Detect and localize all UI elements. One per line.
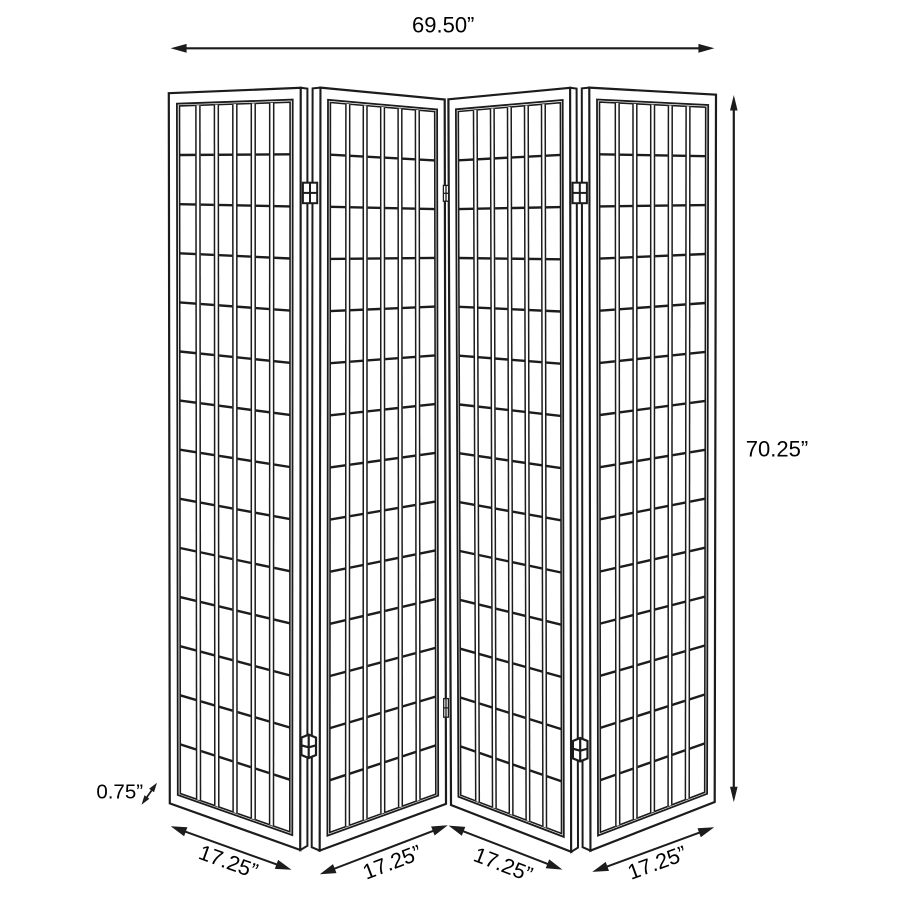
svg-text:70.25”: 70.25” bbox=[746, 436, 808, 461]
svg-text:0.75”: 0.75” bbox=[96, 781, 143, 804]
svg-text:69.50”: 69.50” bbox=[412, 12, 474, 37]
